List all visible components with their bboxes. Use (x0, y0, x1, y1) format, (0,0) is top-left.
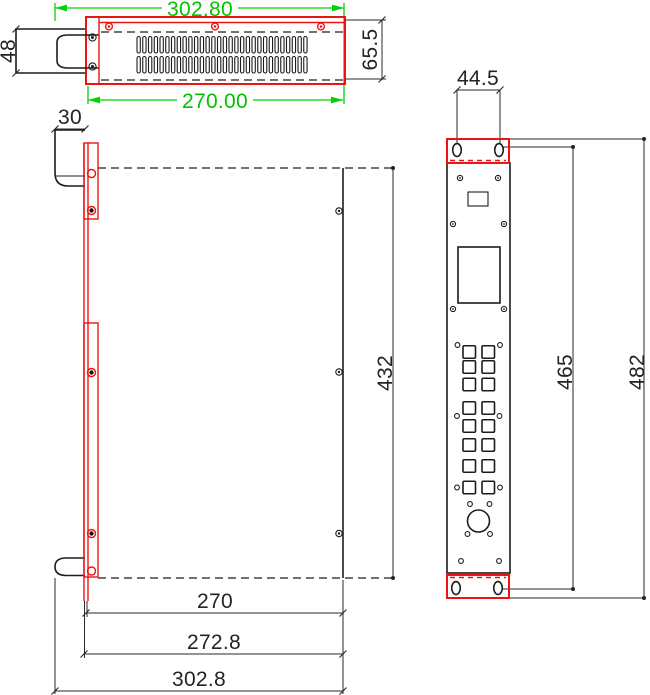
dim-label-overall-width-side: 302.8 (172, 668, 226, 691)
endpoint-dot (642, 137, 646, 141)
vent-slot (143, 37, 146, 54)
flange-hole-center (89, 208, 93, 212)
panel-button (482, 378, 495, 391)
vent-slot (195, 57, 198, 74)
knob-cutout (468, 510, 490, 532)
panel-screws (450, 175, 506, 311)
small-hole (465, 532, 470, 537)
panel-screw-center (503, 308, 505, 310)
vent-slot (212, 37, 215, 54)
small-holes (455, 343, 503, 564)
vent-slot (183, 37, 186, 54)
panel-button (482, 420, 495, 433)
endpoint-dot (391, 576, 395, 580)
front-view-panel (447, 163, 510, 573)
vent-slot (218, 57, 221, 74)
vent-slot (195, 37, 198, 54)
small-hole (487, 502, 492, 507)
panel-screw-center (503, 223, 505, 225)
front-view-ear-bottom (447, 575, 509, 598)
small-hole (455, 485, 460, 490)
vent-slot (189, 37, 192, 54)
vent-slot (281, 37, 284, 54)
vent-slot (304, 57, 307, 74)
vent-slot (241, 57, 244, 74)
vent-slot (189, 57, 192, 74)
small-hole (498, 343, 503, 348)
vent-slot (218, 37, 221, 54)
panel-screw-hole-center (214, 25, 217, 28)
front-panel-outline (447, 163, 510, 573)
mount-slot (452, 582, 461, 595)
screen-cutout (458, 247, 500, 303)
vent-slot (269, 57, 272, 74)
panel-button (482, 402, 495, 415)
dim-ear-hole-spacing: 44.5 (454, 67, 504, 144)
vent-slot (200, 37, 203, 54)
panel-screw-center (459, 177, 461, 179)
vent-slot (287, 37, 290, 54)
small-hole (488, 532, 493, 537)
vent-slot (160, 57, 163, 74)
front-view: 44.5 465 482 (447, 67, 649, 600)
vent-slot (235, 57, 238, 74)
vent-slot (292, 37, 295, 54)
vent-slot (298, 57, 301, 74)
vent-slot (149, 37, 152, 54)
panel-button (463, 420, 476, 433)
vent-slot (177, 37, 180, 54)
dim-handle-height: 48 (0, 26, 20, 77)
chassis-screw-hole-center (338, 532, 340, 534)
vent-slot (275, 57, 278, 74)
button-grid (463, 346, 495, 494)
endpoint-dot (571, 145, 575, 149)
panel-button (482, 346, 495, 359)
dim-label-panel-width: 272.8 (187, 631, 241, 654)
small-hole (468, 502, 473, 507)
arrowhead (332, 5, 344, 12)
panel-button (482, 481, 495, 494)
chassis-screw-hole-center (338, 210, 340, 212)
engineering-drawing: 302.80 48 (0, 0, 650, 695)
front-bar-hole-center (91, 65, 94, 68)
vent-slot (229, 37, 232, 54)
vent-slot (264, 57, 267, 74)
mount-slot (494, 582, 503, 595)
vent-slot (206, 37, 209, 54)
vent-slot (200, 57, 203, 74)
drawing-canvas: 302.80 48 (0, 0, 650, 695)
mount-slot (453, 144, 462, 157)
panel-button (463, 481, 476, 494)
dim-panel-depth: 65.5 (346, 17, 386, 83)
label-window (468, 192, 488, 206)
small-hole (455, 343, 460, 348)
dim-vent-width-top: 270.00 (88, 86, 343, 113)
small-hole (498, 485, 503, 490)
vent-slot (166, 37, 169, 54)
panel-screw-hole-center (108, 25, 111, 28)
panel-button (463, 439, 476, 452)
vent-slot (264, 37, 267, 54)
handle-bottom (55, 558, 85, 576)
vent-slot (252, 37, 255, 54)
small-hole (459, 559, 464, 564)
endpoint-dot (642, 596, 646, 600)
vent-slot (304, 37, 307, 54)
vent-slot (212, 57, 215, 74)
panel-screw-holes-red (106, 23, 325, 30)
mount-slot (495, 144, 504, 157)
panel-button (463, 402, 476, 415)
panel-screw-center (452, 308, 454, 310)
vent-slot (160, 37, 163, 54)
panel-button (463, 346, 476, 359)
dim-label-body-width: 270 (197, 590, 233, 613)
vent-slot (246, 37, 249, 54)
panel-screw-center (497, 177, 499, 179)
vent-slot-grid (137, 37, 307, 74)
panel-button (482, 361, 495, 374)
side-view: 30 (52, 106, 397, 695)
dim-label-ear-hole-spacing: 44.5 (457, 67, 499, 90)
side-view-front-panel (84, 143, 98, 601)
top-view: 302.80 48 (0, 0, 386, 113)
vent-slot (137, 37, 140, 54)
panel-button (463, 361, 476, 374)
vent-slot (241, 37, 244, 54)
panel-button (482, 460, 495, 473)
vent-slot (281, 57, 284, 74)
vent-slot (137, 57, 140, 74)
dim-mount-span: 465 (503, 145, 577, 591)
endpoint-dot (391, 166, 395, 170)
vent-slot (258, 57, 261, 74)
vent-slot (269, 37, 272, 54)
dim-label-overall-height: 482 (626, 354, 649, 390)
vent-slot (246, 57, 249, 74)
top-view-panel (57, 17, 345, 84)
dim-label-panel-depth: 65.5 (359, 28, 382, 70)
flange-hole-center (89, 370, 93, 374)
arrowhead (55, 5, 67, 12)
vent-slot (172, 37, 175, 54)
front-bar-hole-center (91, 36, 94, 39)
dim-handle-depth: 30 (52, 106, 89, 133)
vent-slot (149, 57, 152, 74)
endpoint-dot (571, 587, 575, 591)
vent-slot (143, 57, 146, 74)
vent-slot (229, 57, 232, 74)
panel-button (463, 378, 476, 391)
dim-overall-height: 482 (509, 137, 649, 600)
dim-label-body-length: 432 (374, 355, 397, 391)
small-hole (497, 559, 502, 564)
panel-button (463, 460, 476, 473)
front-bar-holes (89, 34, 96, 70)
dim-body-length: 432 (374, 166, 397, 580)
panel-screw-hole-center (320, 25, 323, 28)
chassis-screw-holes (336, 208, 342, 537)
arrowhead (331, 97, 343, 104)
side-view-handle-bottom (55, 558, 85, 576)
vent-slot (235, 37, 238, 54)
handle-top (55, 130, 85, 186)
vent-slot (154, 37, 157, 54)
vent-slot (223, 37, 226, 54)
vent-slot (287, 57, 290, 74)
panel-button (482, 439, 495, 452)
dim-label-handle-height: 48 (0, 39, 20, 63)
vent-slot (166, 57, 169, 74)
dim-label-mount-span: 465 (554, 354, 577, 390)
flange-bracket-bottom (84, 323, 98, 577)
vent-slot (154, 57, 157, 74)
small-hole (497, 414, 502, 419)
vent-slot (258, 37, 261, 54)
small-hole (455, 414, 460, 419)
dim-label-vent-width: 270.00 (182, 90, 248, 113)
flange-hole-center (89, 531, 93, 535)
dim-label-handle-depth: 30 (58, 106, 82, 129)
panel-screw-center (452, 223, 454, 225)
vent-slot (223, 57, 226, 74)
vent-slot (172, 57, 175, 74)
side-view-chassis (98, 168, 393, 578)
flange-bracket-top (84, 143, 98, 219)
vent-slot (298, 37, 301, 54)
vent-slot (177, 57, 180, 74)
vent-slot (292, 57, 295, 74)
side-view-handle-top (55, 130, 85, 186)
arrowhead (88, 97, 100, 104)
vent-slot (183, 57, 186, 74)
chassis-screw-hole-center (338, 371, 340, 373)
vent-slot (252, 57, 255, 74)
vent-slot (275, 37, 278, 54)
vent-slot (206, 57, 209, 74)
